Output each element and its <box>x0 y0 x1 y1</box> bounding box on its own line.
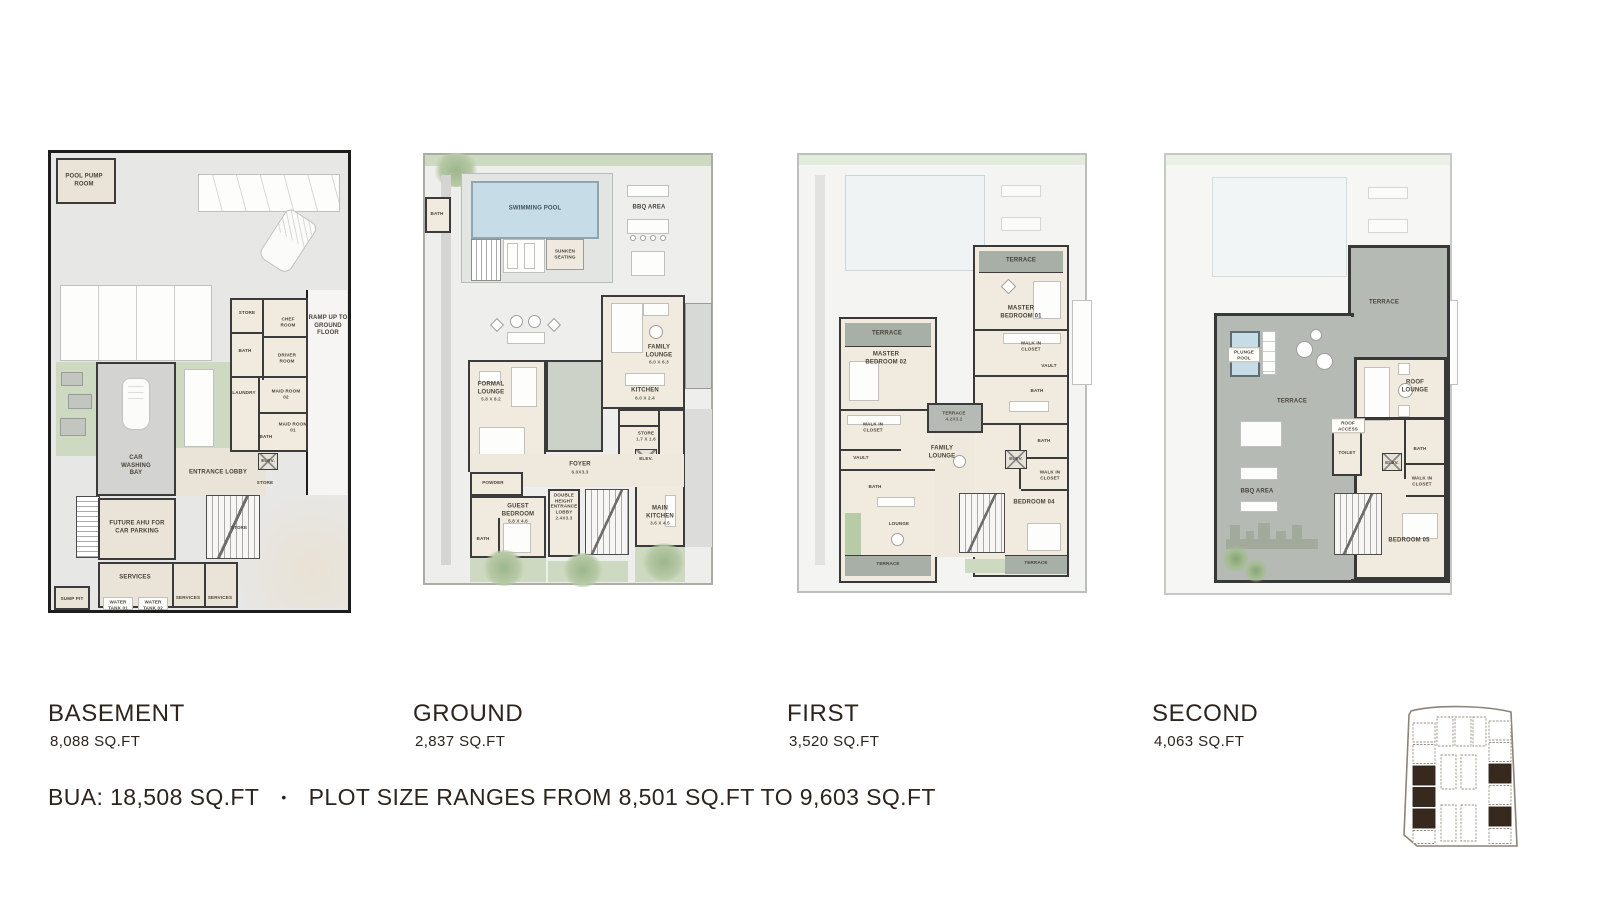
plunge-pool <box>1230 331 1260 377</box>
bbq-below-outline <box>1368 187 1408 199</box>
bed <box>1402 513 1438 539</box>
planter <box>60 418 86 436</box>
terrace-band <box>1005 555 1067 574</box>
ground-floor-plan: SWIMMING POOL BBQ AREA SUNKEN SEATING BA… <box>413 145 719 610</box>
hallway <box>685 409 712 547</box>
stairs <box>206 495 260 559</box>
site-key-plan <box>1377 695 1525 853</box>
bed <box>1027 523 1061 551</box>
coffee-table <box>1398 383 1413 398</box>
main-kitchen-room <box>635 485 685 547</box>
parking-stalls <box>60 285 212 361</box>
wall <box>262 300 264 380</box>
side-terrace <box>685 303 712 389</box>
trellis <box>1258 523 1270 540</box>
lounge-chair <box>528 315 541 328</box>
basement-floor-plan: POOL PUMP ROOM RAMP UP TO GROUND FLOOR S… <box>48 150 351 613</box>
entrance-lobby-floor <box>176 448 266 496</box>
staff-rooms-block <box>230 298 308 452</box>
lounge-chair <box>1296 341 1313 358</box>
bbq-below-outline <box>1001 185 1041 197</box>
stairs <box>1334 493 1382 555</box>
lounge-table <box>891 533 904 546</box>
separator-dot: • <box>281 789 286 805</box>
outdoor-bath <box>425 197 451 233</box>
bbq-below-outline <box>1001 217 1041 231</box>
wall <box>975 329 1067 331</box>
plot-size-range: PLOT SIZE RANGES FROM 8,501 SQ.FT TO 9,6… <box>309 784 936 810</box>
floor-area-ground: 2,837 SQ.FT <box>415 733 505 750</box>
wall <box>230 376 308 378</box>
car-icon-wash <box>122 378 150 430</box>
bbq-table <box>1240 501 1278 512</box>
sofa <box>611 303 643 353</box>
pool-below-outline <box>1212 177 1347 277</box>
stairs <box>585 489 629 555</box>
tree <box>643 543 685 581</box>
pool-pump-room <box>56 158 116 204</box>
swimming-pool-water <box>471 181 599 239</box>
wall <box>975 375 1067 377</box>
terrace-band <box>845 323 931 347</box>
stool <box>650 235 656 241</box>
pool-lounger <box>507 243 518 269</box>
pool-lounger <box>524 243 535 269</box>
boundary-wall <box>441 175 451 565</box>
floor-name-basement: BASEMENT <box>48 700 185 728</box>
stairs <box>76 496 100 558</box>
bed <box>1033 281 1061 319</box>
lounge-chair <box>1316 353 1333 370</box>
sunken-seating-box <box>546 239 584 270</box>
sofa <box>1364 367 1390 421</box>
wall <box>230 332 264 334</box>
wall <box>204 564 206 608</box>
wardrobe <box>847 415 901 425</box>
bbq-counter <box>1240 467 1278 480</box>
palm-tree <box>1244 559 1268 583</box>
sofa <box>511 367 537 407</box>
trellis <box>1292 525 1302 540</box>
wall <box>841 409 935 411</box>
terrace-band <box>845 555 931 576</box>
wall <box>264 336 308 338</box>
wall <box>620 425 660 427</box>
bbq-table <box>627 219 669 234</box>
wall <box>1406 463 1446 465</box>
stairs <box>959 493 1005 553</box>
second-floor-plan: TERRACE PLUNGE POOL TERRACE BBQ AREA ROO… <box>1152 145 1462 610</box>
wall <box>1021 457 1069 459</box>
toilet-room <box>1332 420 1362 476</box>
planter <box>845 513 861 555</box>
outdoor-sofa <box>507 332 545 344</box>
planter <box>61 372 83 386</box>
parking-stall-single <box>184 369 214 447</box>
elevator <box>1382 453 1402 471</box>
entrance-lobby-room <box>548 489 580 557</box>
courtyard <box>546 360 603 452</box>
floor-name-second: SECOND <box>1152 700 1258 728</box>
landscape-strip-top <box>799 155 1085 165</box>
floor-name-ground: GROUND <box>413 700 523 728</box>
bed <box>503 523 531 553</box>
floor-area-second: 4,063 SQ.FT <box>1154 733 1244 750</box>
bbq-below-outline <box>1368 219 1408 233</box>
sofa <box>643 303 669 316</box>
tree <box>483 550 525 586</box>
lounge-chair <box>1310 329 1322 341</box>
future-ahu-room <box>98 498 176 560</box>
elevator <box>258 453 278 470</box>
trellis <box>1230 525 1240 540</box>
wall <box>841 449 901 451</box>
floor-area-basement: 8,088 SQ.FT <box>50 733 140 750</box>
stool <box>660 235 666 241</box>
wall <box>1356 417 1445 420</box>
garden-strip <box>965 559 1005 573</box>
planter <box>68 394 92 409</box>
trellis <box>1246 531 1254 540</box>
wardrobe <box>1003 333 1061 344</box>
floor-area-first: 3,520 SQ.FT <box>789 733 879 750</box>
wall <box>1404 419 1406 479</box>
stool <box>640 235 646 241</box>
sump-pit-room <box>54 586 90 610</box>
sofa <box>479 371 501 383</box>
bathtub <box>1009 401 1049 412</box>
wall <box>260 412 308 414</box>
wall <box>1406 495 1446 497</box>
coffee-table <box>649 325 663 339</box>
terrace-band <box>979 251 1063 273</box>
mid-terrace <box>927 403 983 433</box>
bua-total: BUA: 18,508 SQ.FT <box>48 784 259 810</box>
pool-below-outline <box>845 175 985 271</box>
armchair <box>1398 363 1410 375</box>
outdoor-dining-table <box>1240 421 1282 447</box>
trellis <box>1276 531 1286 540</box>
table <box>953 455 966 468</box>
tree <box>563 553 603 587</box>
pool-steps <box>471 239 501 281</box>
bbq-counter <box>627 185 669 197</box>
water-tank-01 <box>103 597 133 610</box>
void-panel <box>1072 300 1092 385</box>
boundary-wall <box>815 175 825 565</box>
bed <box>849 361 879 401</box>
elevator <box>1005 450 1027 469</box>
stool <box>630 235 636 241</box>
counter <box>665 495 676 527</box>
bathtub <box>877 497 915 507</box>
landscape-strip-top <box>1166 155 1450 165</box>
wall <box>172 564 174 608</box>
first-floor-plan: TERRACE MASTER BEDROOM 01 WALK IN CLOSET… <box>787 145 1093 610</box>
pool-lounger <box>1262 331 1276 375</box>
lounge-chair <box>510 315 523 328</box>
wall <box>975 423 1067 425</box>
floor-name-first: FIRST <box>787 700 859 728</box>
water-tank-02 <box>138 597 168 610</box>
storage-stalls <box>198 174 340 212</box>
summary-line: BUA: 18,508 SQ.FT•PLOT SIZE RANGES FROM … <box>48 784 936 811</box>
ramp-zone <box>306 290 347 495</box>
wall <box>258 378 260 452</box>
outdoor-dining-table <box>631 251 665 276</box>
wall <box>841 469 935 471</box>
floor-plans-sheet: POOL PUMP ROOM RAMP UP TO GROUND FLOOR S… <box>0 0 1600 900</box>
armchair <box>1398 405 1410 417</box>
kitchen-island <box>625 373 665 386</box>
wall <box>1021 489 1069 491</box>
powder-room <box>470 472 523 496</box>
